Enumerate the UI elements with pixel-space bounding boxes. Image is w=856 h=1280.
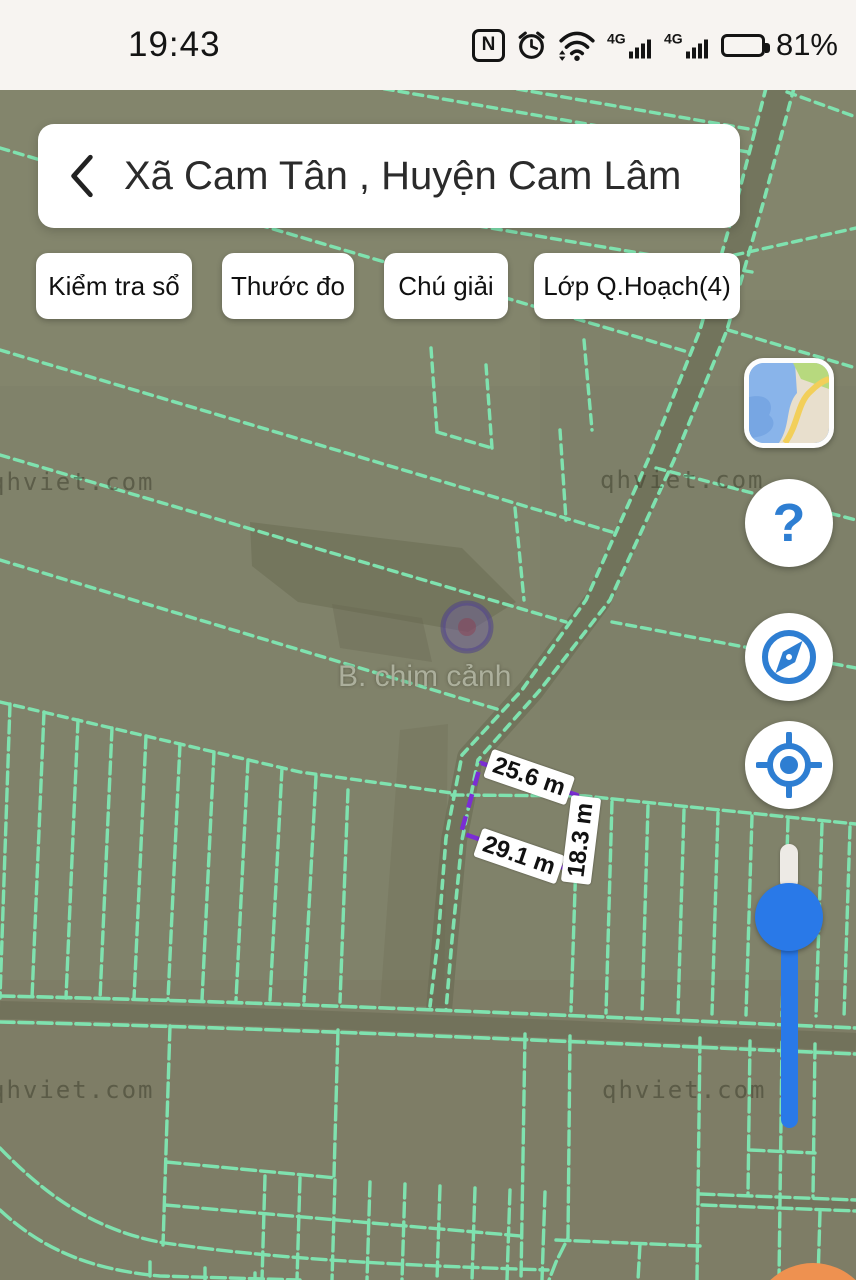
nfc-icon: N bbox=[472, 29, 505, 62]
back-icon[interactable] bbox=[68, 153, 96, 199]
help-button[interactable]: ? bbox=[745, 479, 833, 567]
measure-tool-button[interactable]: Thước đo bbox=[222, 253, 354, 319]
question-mark-icon: ? bbox=[773, 492, 806, 554]
wifi-icon bbox=[558, 27, 596, 63]
phone-screen: qhviet.com qhviet.com qhviet.com qhviet.… bbox=[0, 0, 856, 1280]
map-thumbnail-icon bbox=[749, 363, 829, 443]
battery-icon bbox=[721, 34, 765, 57]
search-header[interactable]: Xã Cam Tân , Huyện Cam Lâm bbox=[38, 124, 740, 228]
compass-button[interactable] bbox=[745, 613, 833, 701]
svg-text:4G: 4G bbox=[664, 30, 683, 46]
watermark: qhviet.com bbox=[602, 1076, 767, 1104]
planning-layer-button[interactable]: Lớp Q.Hoạch(4) bbox=[534, 253, 740, 319]
battery-percent: 81% bbox=[776, 27, 838, 63]
watermark: qhviet.com bbox=[0, 468, 155, 496]
signal-4g-icon: 4G bbox=[664, 30, 710, 61]
watermark: qhviet.com bbox=[600, 466, 765, 494]
alarm-icon bbox=[516, 30, 547, 61]
map-type-button[interactable] bbox=[744, 358, 834, 448]
zoom-slider-track[interactable] bbox=[781, 920, 798, 1128]
clock-time: 19:43 bbox=[128, 25, 221, 65]
watermark: qhviet.com bbox=[0, 1076, 155, 1104]
svg-text:4G: 4G bbox=[607, 30, 626, 46]
check-book-button[interactable]: Kiểm tra sổ bbox=[36, 253, 192, 319]
my-location-button[interactable] bbox=[745, 721, 833, 809]
crosshair-location-icon bbox=[756, 732, 822, 798]
poi-label: B. chim cảnh bbox=[338, 660, 511, 694]
status-bar: 19:43 N 4G 4G bbox=[0, 0, 856, 90]
zoom-slider-knob[interactable] bbox=[755, 883, 823, 951]
poi-marker-icon[interactable] bbox=[443, 603, 491, 651]
location-title: Xã Cam Tân , Huyện Cam Lâm bbox=[124, 154, 681, 199]
legend-button[interactable]: Chú giải bbox=[384, 253, 508, 319]
signal-4g-icon: 4G bbox=[607, 30, 653, 61]
compass-icon bbox=[757, 625, 821, 689]
